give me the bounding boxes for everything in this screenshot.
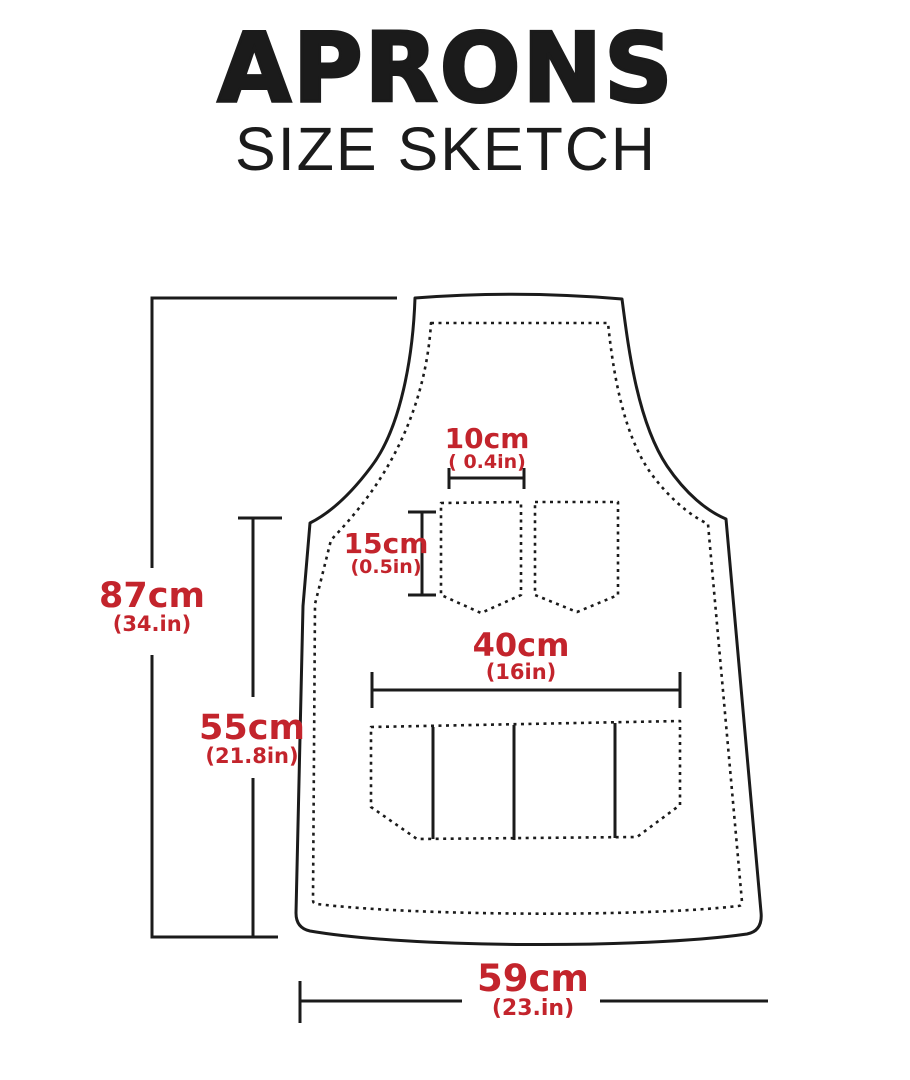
front-pocket-dividers [433,723,615,840]
apron-stitch-line [313,323,742,914]
measurement-inches: (34.in) [99,614,205,636]
measurement-chest-pocket-height: 15cm (0.5in) [344,529,429,578]
apron-outline [296,294,761,944]
chest-pocket-left [441,502,521,613]
measurement-chest-pocket-width: 10cm ( 0.4in) [445,424,530,473]
apron-size-sketch-page: APRONS SIZE SKETCH 87cm (34.in) 55cm [0,0,910,1080]
measurement-value: 59cm [477,960,589,998]
measurement-value: 15cm [344,529,429,558]
measurement-front-pocket-width: 40cm (16in) [473,629,570,684]
measurement-value: 87cm [99,578,205,614]
chest-pocket-right [535,502,618,612]
measurement-value: 40cm [473,629,570,662]
measurement-inches: (21.8in) [199,746,305,768]
apron-diagram [0,0,910,1080]
measurement-bottom-width: 59cm (23.in) [477,960,589,1021]
measurement-inches: (16in) [473,662,570,684]
measurement-inches: (0.5in) [344,558,429,578]
measurement-skirt-height: 55cm (21.8in) [199,710,305,768]
front-pocket [371,721,680,839]
measurement-inches: ( 0.4in) [445,453,530,473]
measurement-total-height: 87cm (34.in) [99,578,205,636]
measurement-value: 55cm [199,710,305,746]
measurement-value: 10cm [445,424,530,453]
measurement-inches: (23.in) [477,998,589,1021]
